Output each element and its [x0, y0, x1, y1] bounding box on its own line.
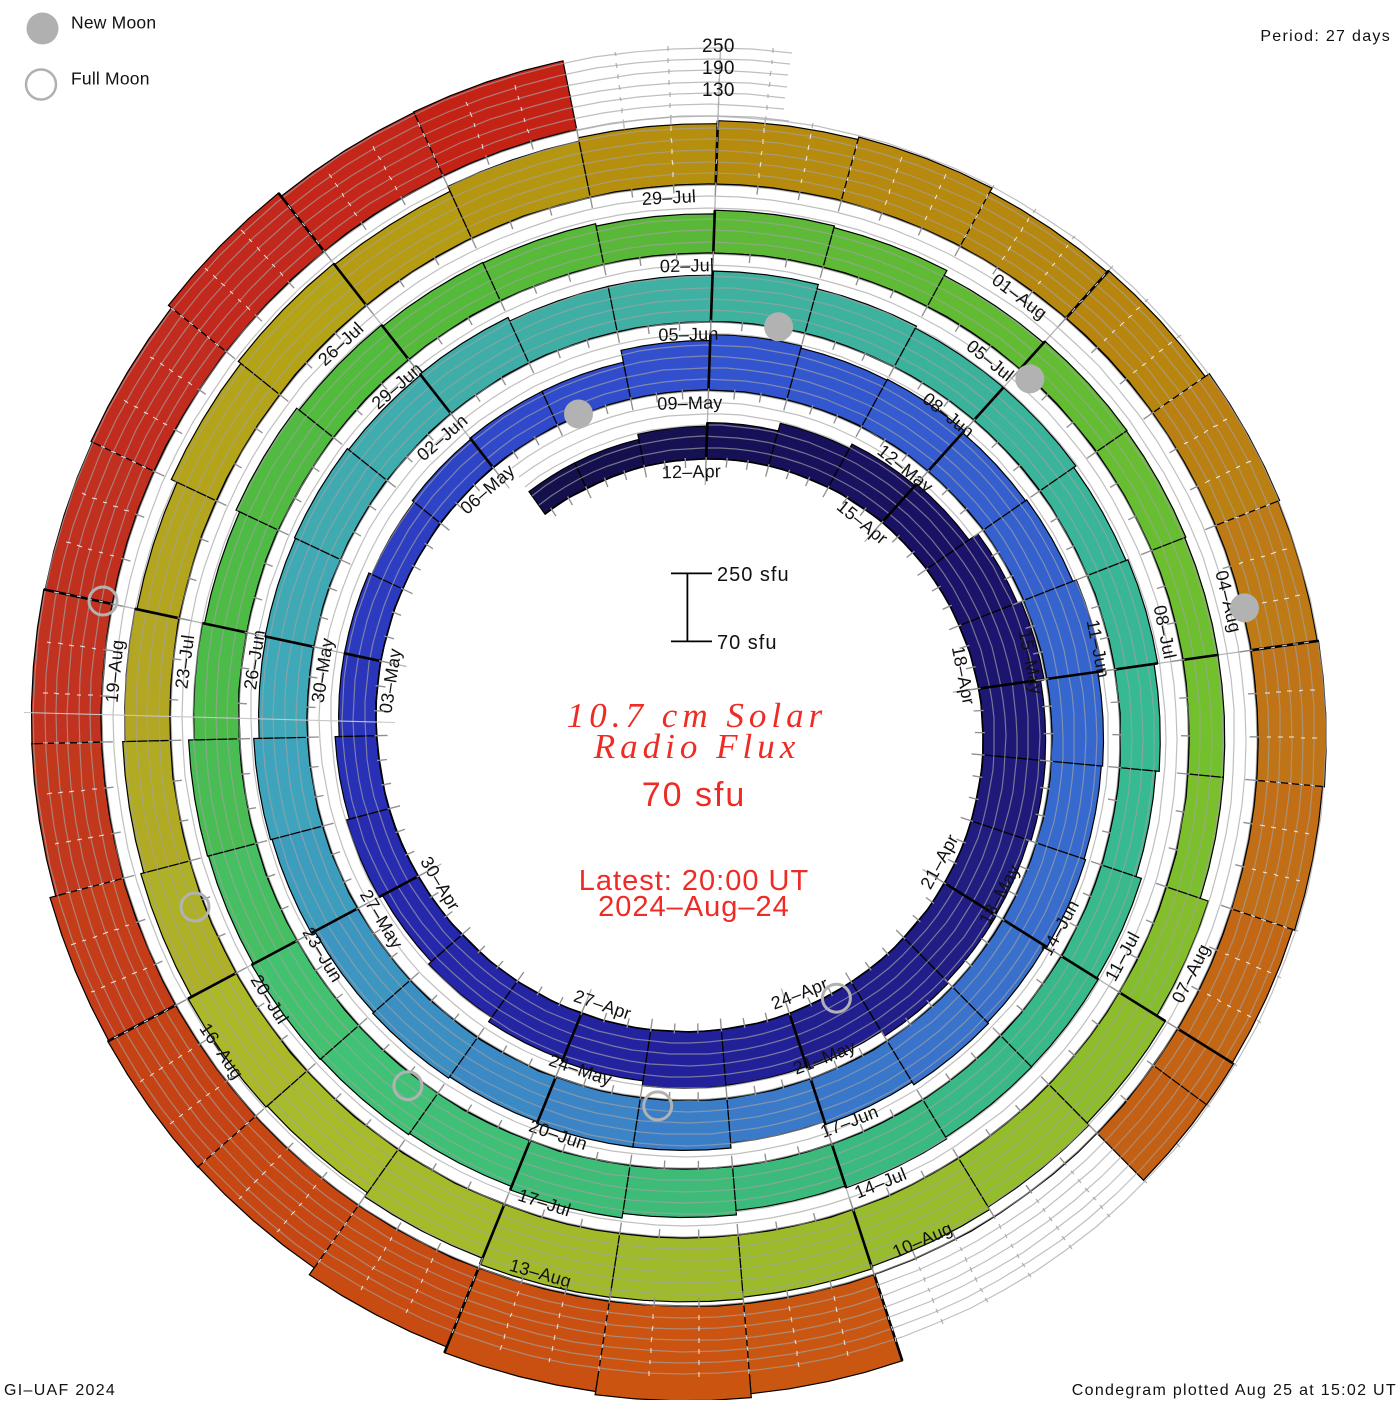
svg-text:Full Moon: Full Moon: [71, 69, 150, 89]
svg-text:29–Jul: 29–Jul: [641, 186, 696, 209]
svg-text:12–Apr: 12–Apr: [662, 461, 722, 482]
svg-text:70 sfu: 70 sfu: [642, 776, 747, 814]
svg-text:02–Jul: 02–Jul: [660, 255, 715, 276]
svg-text:Radio Flux: Radio Flux: [593, 727, 801, 766]
svg-text:250 sfu: 250 sfu: [717, 564, 790, 586]
svg-text:New Moon: New Moon: [71, 13, 156, 33]
svg-text:09–May: 09–May: [657, 392, 723, 413]
svg-text:Condegram plotted Aug 25 at 15: Condegram plotted Aug 25 at 15:02 UT: [1072, 1382, 1397, 1399]
svg-text:2024–Aug–24: 2024–Aug–24: [598, 891, 790, 923]
svg-text:GI–UAF 2024: GI–UAF 2024: [4, 1382, 116, 1399]
svg-text:190: 190: [702, 58, 735, 79]
svg-text:Period: 27 days: Period: 27 days: [1260, 28, 1391, 45]
svg-text:05–Jun: 05–Jun: [658, 324, 719, 345]
svg-text:130: 130: [702, 80, 735, 101]
svg-text:70 sfu: 70 sfu: [717, 632, 777, 654]
svg-text:250: 250: [702, 36, 735, 57]
